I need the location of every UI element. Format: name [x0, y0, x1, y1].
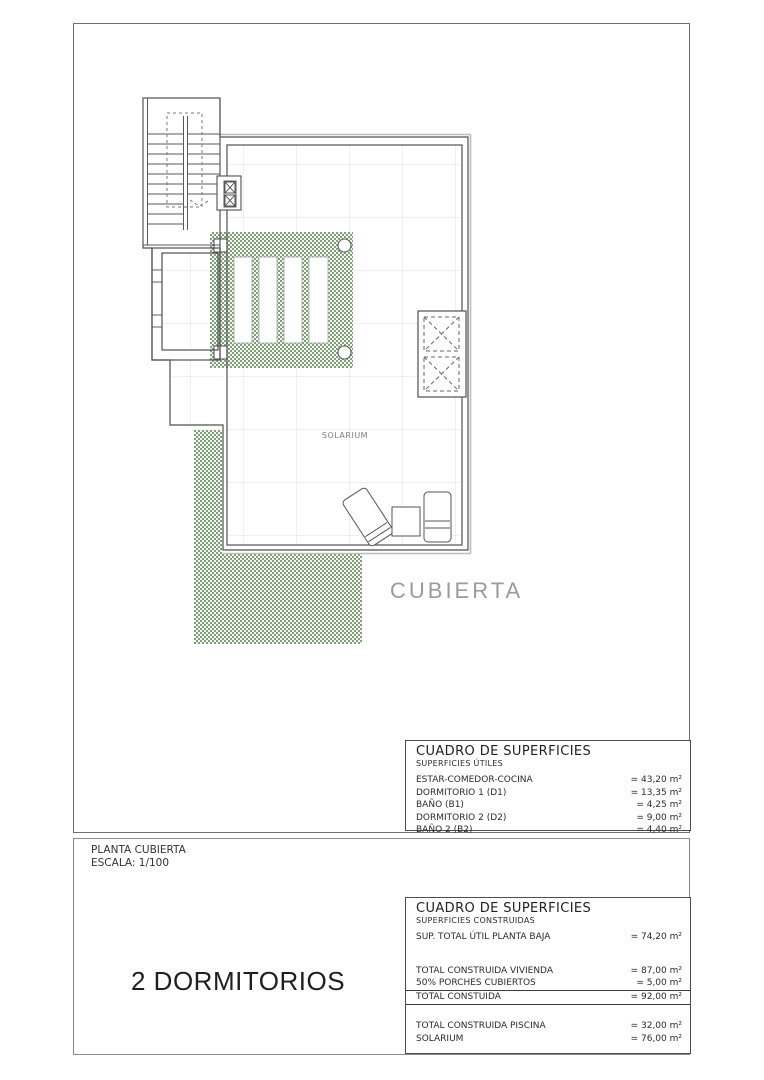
plan-scale: ESCALA: 1/100	[91, 857, 186, 870]
table-row: BAÑO 2 (B2) = 4,40 m²	[416, 824, 682, 837]
surface-table-construidas: CUADRO DE SUPERFICIES SUPERFICIES CONSTR…	[405, 897, 691, 1054]
dwelling-type-label: 2 DORMITORIOS	[131, 966, 343, 997]
table-row: TOTAL CONSTRUIDA PISCINA = 32,00 m²	[416, 1020, 682, 1033]
table-subtitle: SUPERFICIES ÚTILES	[416, 759, 682, 768]
table-row: SOLARIUM = 76,00 m²	[416, 1033, 682, 1046]
table-row: SUP. TOTAL ÚTIL PLANTA BAJA = 74,20 m²	[416, 931, 682, 944]
table-row: 50% PORCHES CUBIERTOS = 5,00 m²	[416, 977, 682, 990]
plan-name: PLANTA CUBIERTA	[91, 844, 186, 857]
table-row: BAÑO (B1) = 4,25 m²	[416, 799, 682, 812]
table-row: DORMITORIO 2 (D2) = 9,00 m²	[416, 812, 682, 825]
title-block: PLANTA CUBIERTA ESCALA: 1/100	[91, 844, 186, 870]
table-row-total: TOTAL CONSTUIDA = 92,00 m²	[406, 990, 690, 1006]
sheet-border-upper	[73, 23, 690, 833]
table-row: DORMITORIO 1 (D1) = 13,35 m²	[416, 787, 682, 800]
drawing-sheet: SOLARIUM CUBIERTA CUADRO DE SUPERFICIES …	[0, 0, 764, 1080]
table-subtitle: SUPERFICIES CONSTRUIDAS	[416, 916, 682, 925]
table-row: TOTAL CONSTRUIDA VIVIENDA = 87,00 m²	[416, 965, 682, 978]
table-title: CUADRO DE SUPERFICIES	[416, 745, 682, 758]
table-title: CUADRO DE SUPERFICIES	[416, 902, 682, 915]
table-row: ESTAR-COMEDOR-COCINA = 43,20 m²	[416, 774, 682, 787]
surface-table-utiles: CUADRO DE SUPERFICIES SUPERFICIES ÚTILES…	[405, 740, 691, 831]
